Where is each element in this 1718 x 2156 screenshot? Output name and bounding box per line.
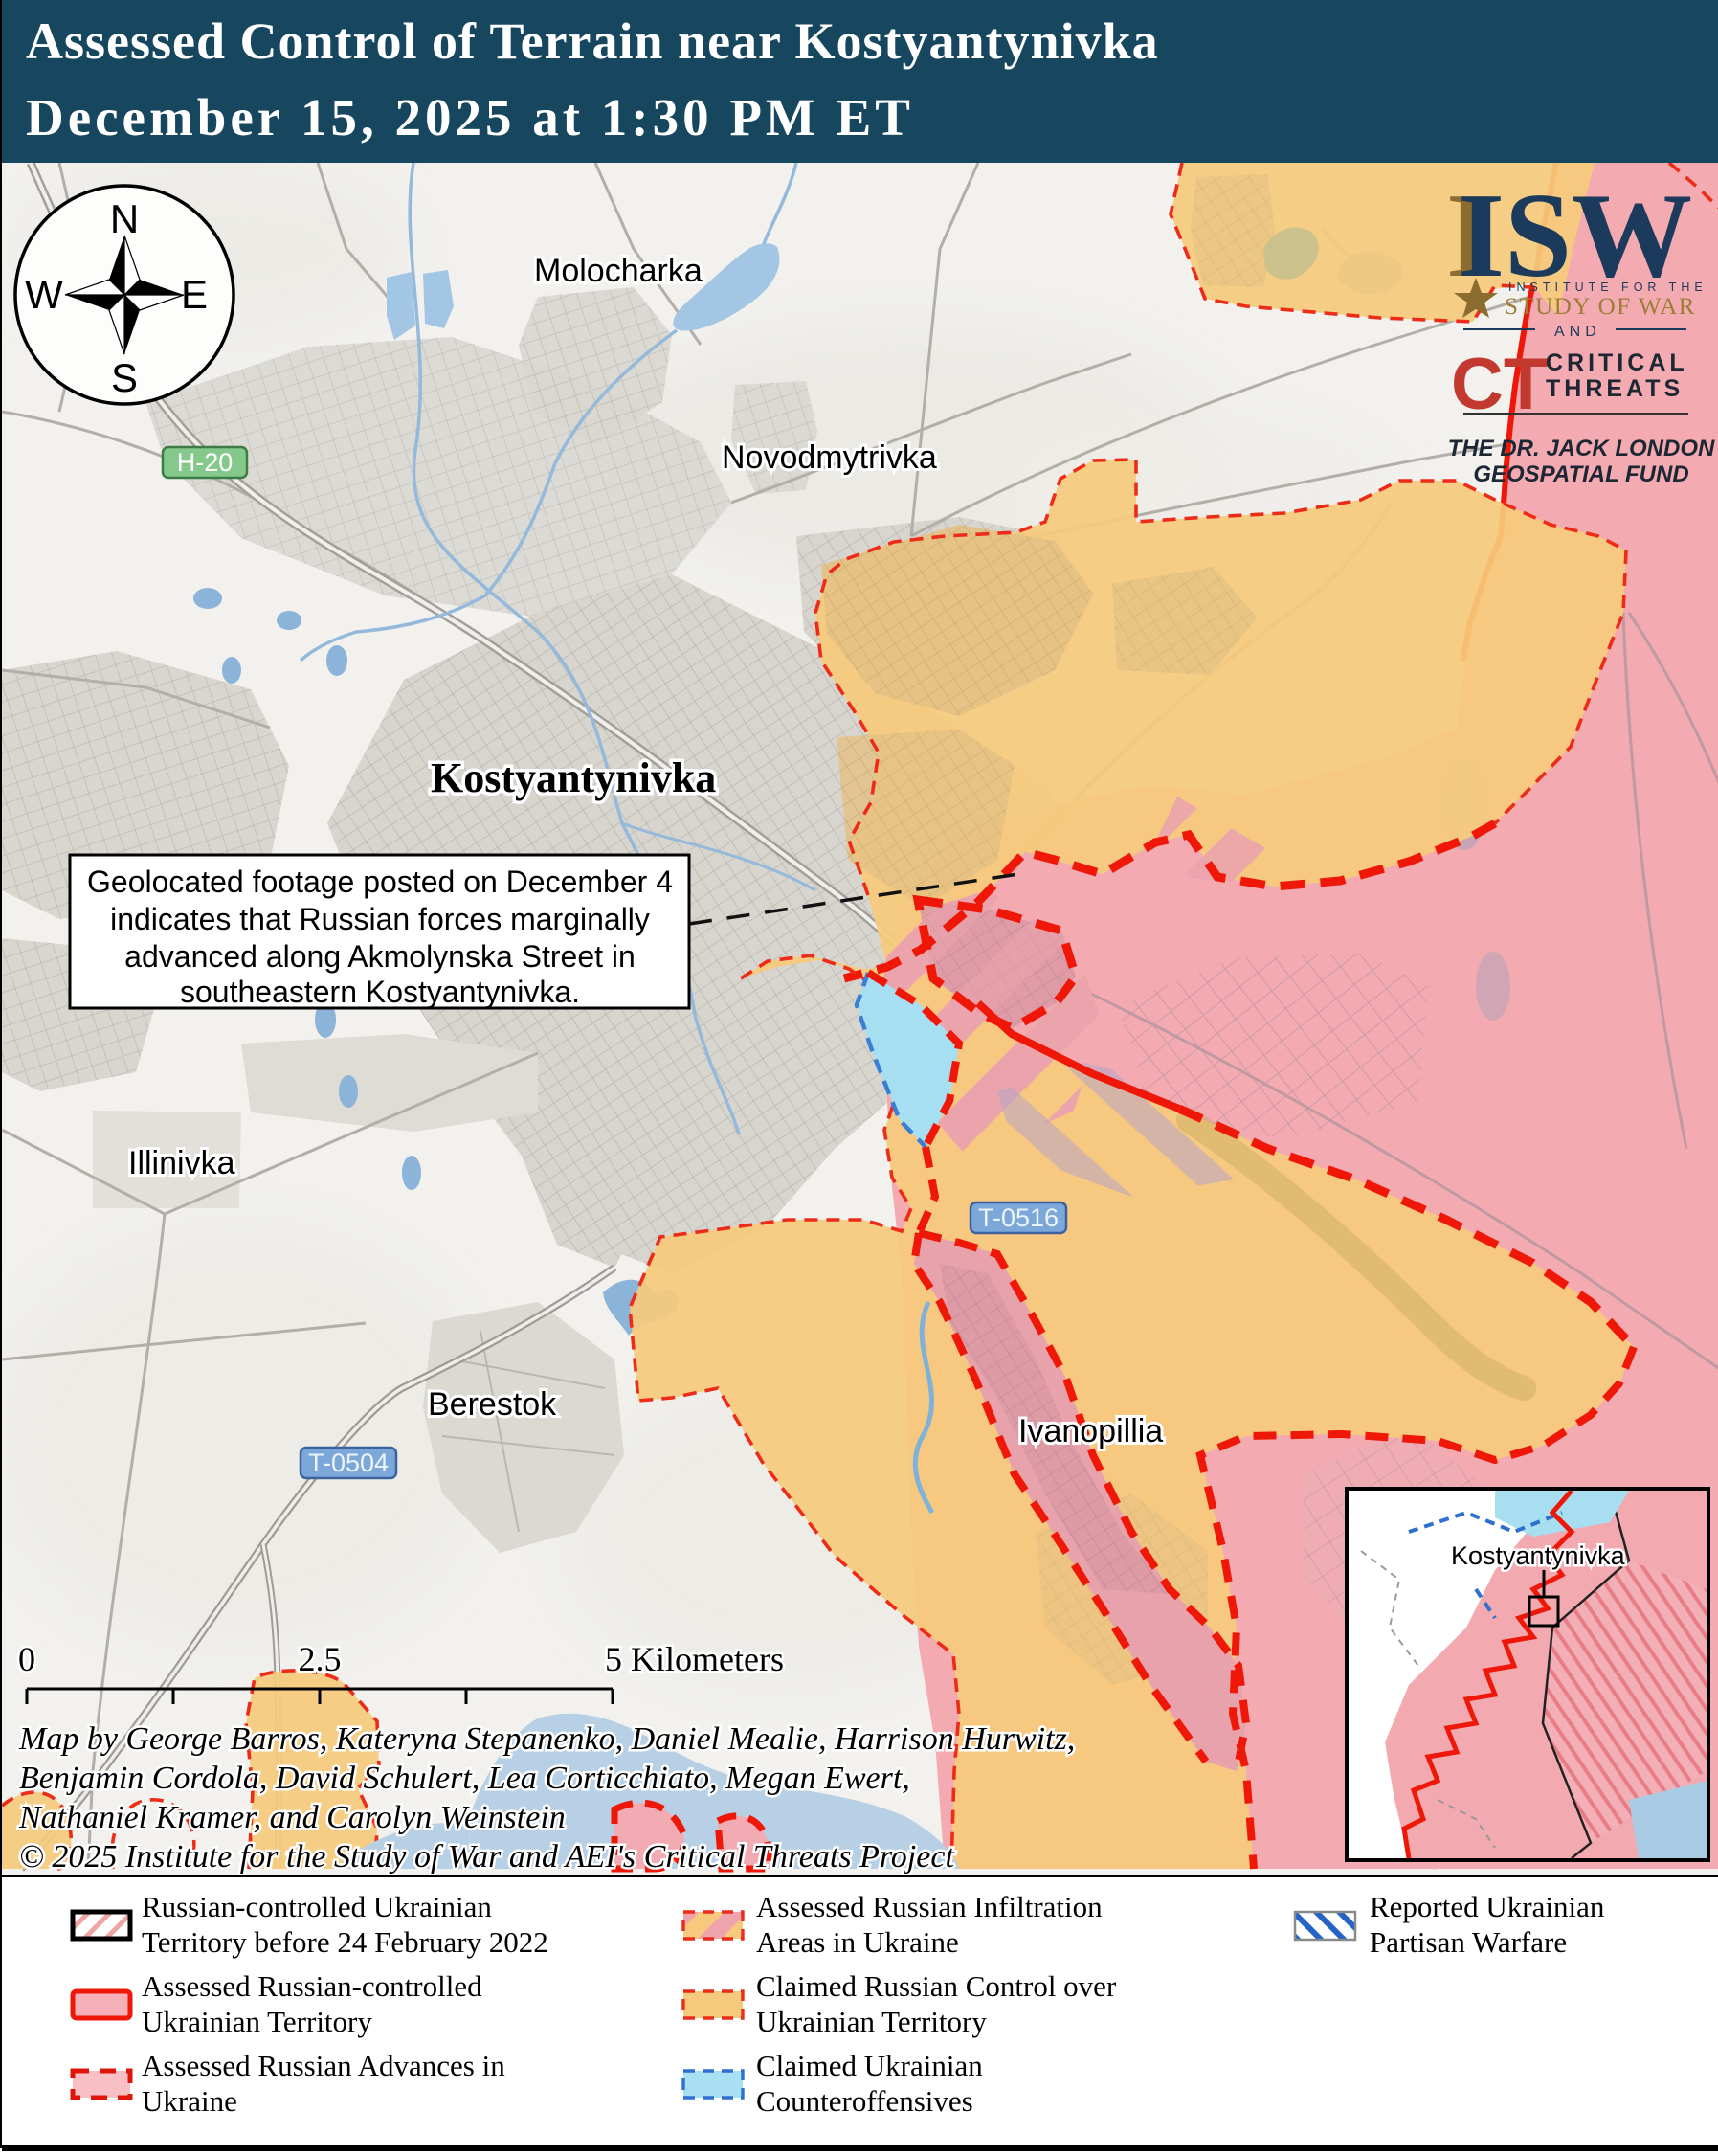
svg-text:Claimed Ukrainian: Claimed Ukrainian: [756, 2049, 983, 2082]
svg-text:E: E: [181, 272, 208, 317]
svg-text:Partisan Warfare: Partisan Warfare: [1370, 1925, 1567, 1959]
svg-text:Assessed Russian Advances in: Assessed Russian Advances in: [142, 2049, 505, 2082]
svg-text:Assessed Russian Infiltration: Assessed Russian Infiltration: [756, 1890, 1103, 1923]
svg-text:Reported Ukrainian: Reported Ukrainian: [1370, 1890, 1605, 1923]
svg-text:GEOSPATIAL FUND: GEOSPATIAL FUND: [1473, 461, 1688, 487]
svg-text:2.5: 2.5: [299, 1640, 342, 1678]
svg-text:Berestok: Berestok: [428, 1386, 557, 1423]
svg-text:5 Kilometers: 5 Kilometers: [605, 1640, 784, 1678]
svg-text:advanced along Akmolynska Stre: advanced along Akmolynska Street in: [124, 939, 636, 974]
svg-text:T-0516: T-0516: [978, 1203, 1059, 1232]
svg-text:Geolocated footage posted on D: Geolocated footage posted on December 4: [87, 865, 673, 899]
svg-text:Claimed Russian Control over: Claimed Russian Control over: [756, 1969, 1117, 2003]
svg-text:STUDY OF WAR: STUDY OF WAR: [1505, 294, 1696, 320]
svg-text:Nathaniel Kramer, and Carolyn: Nathaniel Kramer, and Carolyn Weinstein: [18, 1800, 566, 1835]
svg-text:0: 0: [18, 1640, 35, 1678]
svg-text:Assessed Russian-controlled: Assessed Russian-controlled: [142, 1969, 482, 2003]
svg-text:© 2025 Institute for the Study: © 2025 Institute for the Study of War an…: [19, 1839, 955, 1875]
svg-text:INSTITUTE FOR THE: INSTITUTE FOR THE: [1508, 281, 1707, 294]
svg-text:THREATS: THREATS: [1546, 375, 1684, 402]
svg-text:Areas in Ukraine: Areas in Ukraine: [756, 1925, 959, 1959]
svg-text:Illinivka: Illinivka: [128, 1145, 235, 1181]
svg-text:Ukrainian Territory: Ukrainian Territory: [756, 2005, 987, 2038]
svg-text:Kostyantynivka: Kostyantynivka: [1451, 1541, 1626, 1570]
svg-text:Molocharka: Molocharka: [534, 253, 703, 289]
svg-text:Territory before 24 February 2: Territory before 24 February 2022: [142, 1925, 548, 1959]
svg-text:Russian-controlled Ukrainian: Russian-controlled Ukrainian: [142, 1890, 492, 1923]
svg-text:AND: AND: [1554, 324, 1601, 340]
svg-text:THE DR. JACK LONDON: THE DR. JACK LONDON: [1448, 436, 1715, 461]
svg-text:Benjamin Cordola, David Schule: Benjamin Cordola, David Schulert, Lea Co…: [19, 1761, 910, 1796]
svg-text:southeastern Kostyantynivka.: southeastern Kostyantynivka.: [180, 975, 580, 1009]
svg-text:Map by George Barros, Kateryna: Map by George Barros, Kateryna Stepanenk…: [18, 1721, 1075, 1757]
svg-text:CRITICAL: CRITICAL: [1546, 349, 1688, 376]
svg-text:Counteroffensives: Counteroffensives: [756, 2084, 973, 2118]
svg-text:H-20: H-20: [177, 448, 234, 477]
svg-text:Novodmytrivka: Novodmytrivka: [722, 439, 937, 476]
svg-text:S: S: [111, 355, 138, 400]
svg-text:Ukrainian Territory: Ukrainian Territory: [142, 2005, 372, 2038]
svg-text:Kostyantynivka: Kostyantynivka: [431, 754, 716, 801]
svg-text:T-0504: T-0504: [308, 1449, 389, 1477]
svg-text:Ukraine: Ukraine: [142, 2084, 237, 2118]
svg-text:Ivanopillia: Ivanopillia: [1018, 1413, 1163, 1449]
svg-text:N: N: [110, 196, 139, 241]
svg-text:indicates that Russian forces: indicates that Russian forces marginally: [110, 902, 650, 936]
svg-text:W: W: [25, 272, 63, 317]
